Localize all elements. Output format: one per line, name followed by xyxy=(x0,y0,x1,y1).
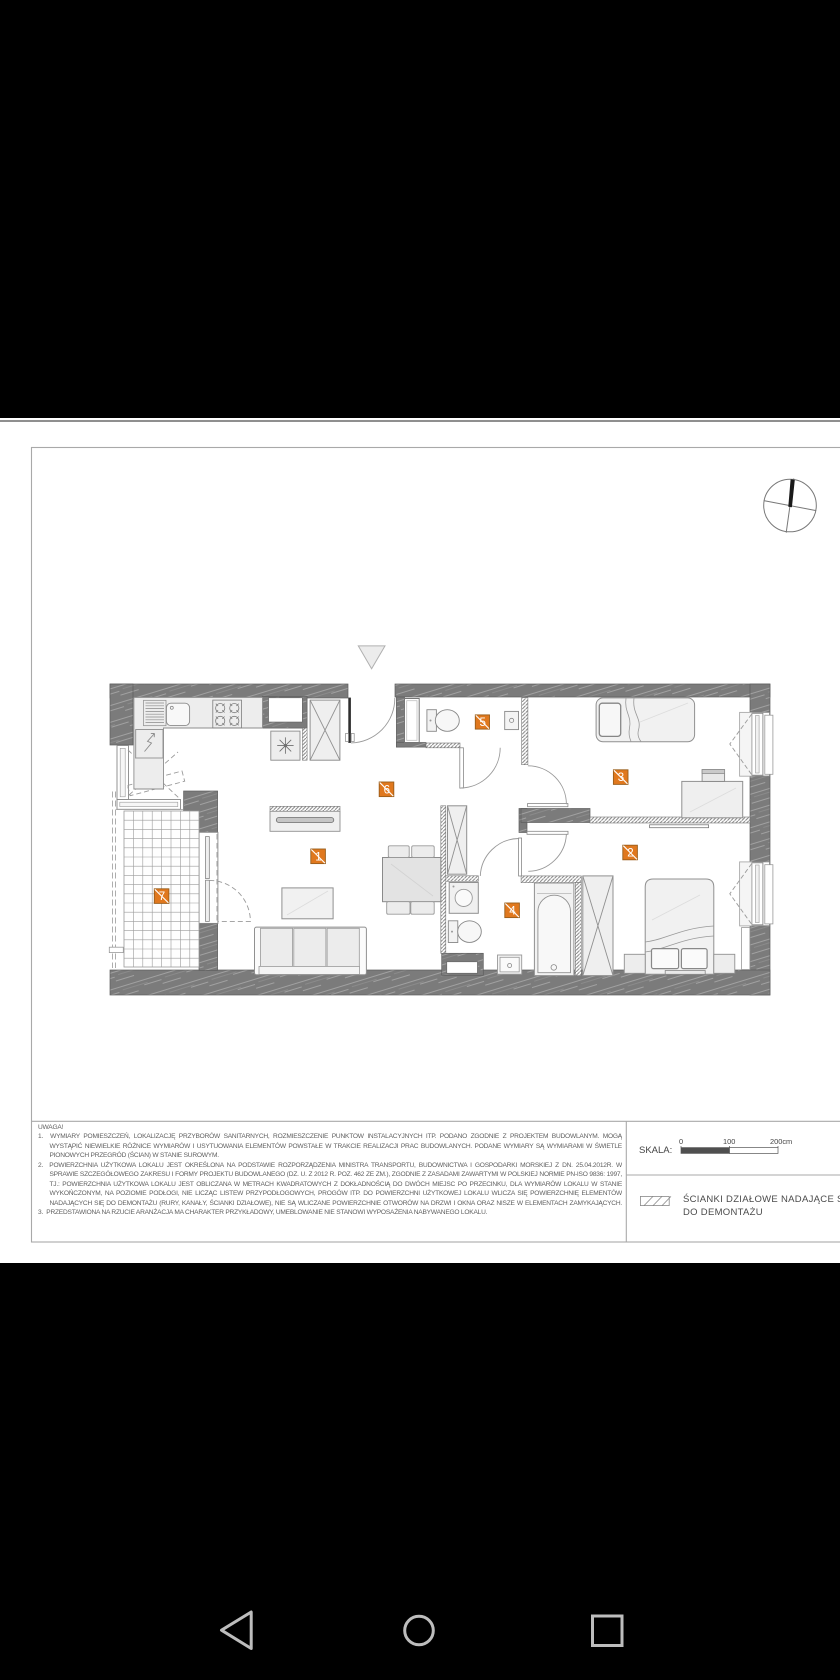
svg-text:3: 3 xyxy=(618,772,624,784)
svg-text:6: 6 xyxy=(384,784,390,796)
svg-text:1: 1 xyxy=(315,851,321,863)
svg-text:200cm: 200cm xyxy=(770,1137,792,1146)
svg-text:100: 100 xyxy=(723,1137,735,1146)
svg-text:0: 0 xyxy=(679,1137,683,1146)
svg-text:2: 2 xyxy=(627,848,633,860)
svg-text:7: 7 xyxy=(159,891,165,903)
